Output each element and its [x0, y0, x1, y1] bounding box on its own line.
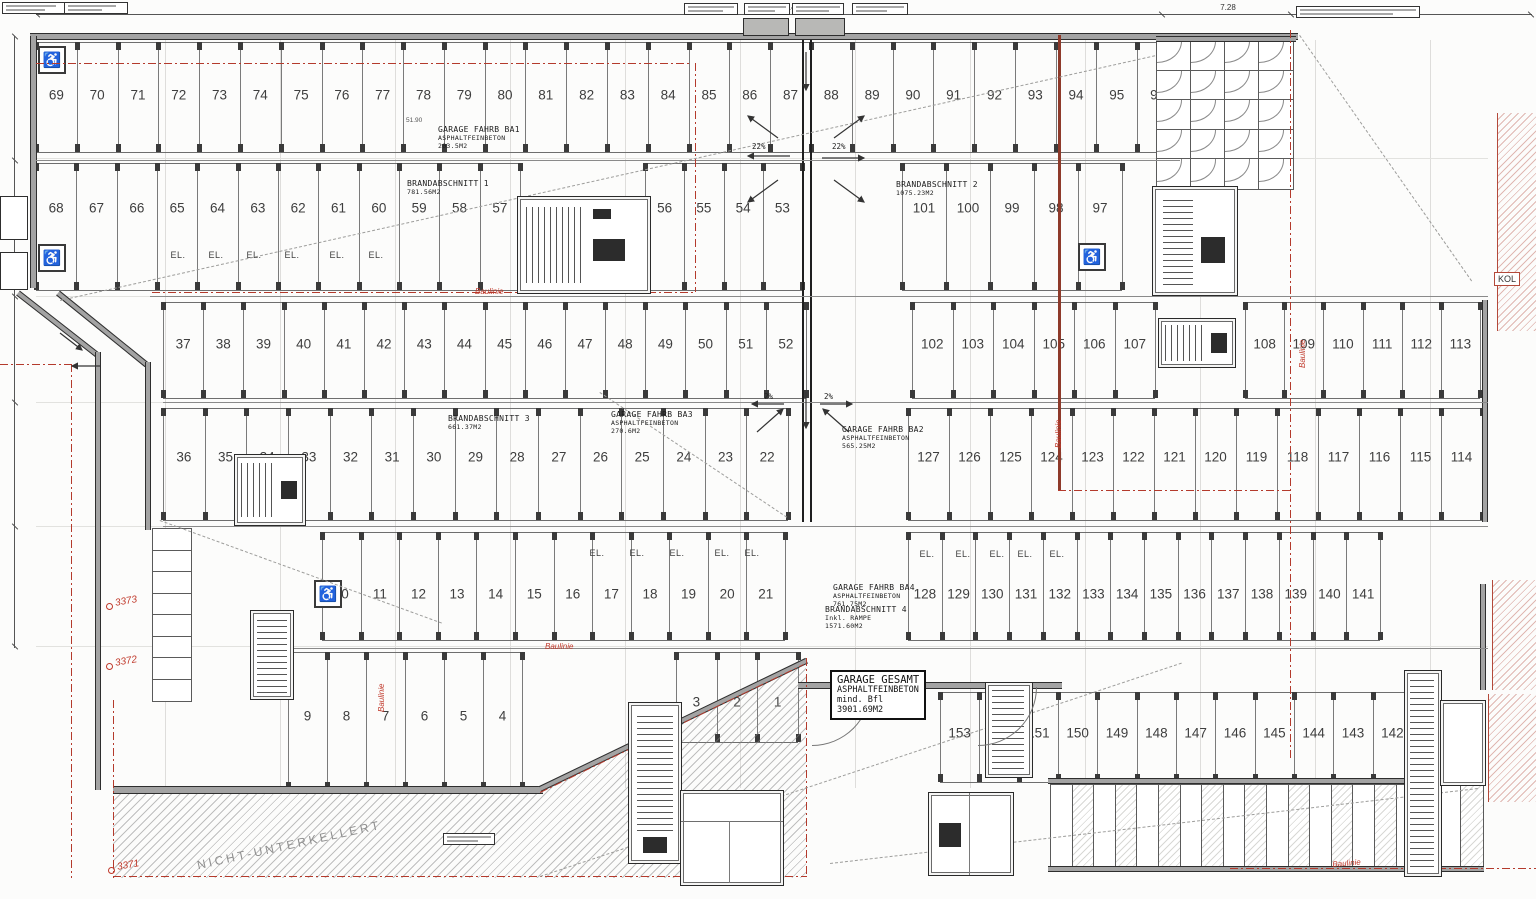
parking-divider [476, 532, 477, 640]
parking-space-number: 3 [693, 695, 701, 710]
column-block [1120, 163, 1125, 171]
storage-room-cell [1309, 784, 1333, 868]
parking-space-number: 47 [577, 337, 592, 352]
parking-space-number: 128 [914, 587, 937, 602]
storage-room-cell [1244, 784, 1268, 868]
column-block [667, 632, 672, 640]
column-block [276, 163, 281, 171]
parking-divider [199, 42, 200, 152]
parking-space-number: 28 [510, 450, 525, 465]
column-block [483, 42, 488, 50]
column-block [850, 144, 855, 152]
column-block [161, 512, 166, 520]
survey-point-marker [108, 867, 115, 874]
column-block [402, 390, 407, 398]
parking-divider [238, 163, 239, 290]
parking-space-number: 5 [460, 709, 468, 724]
parking-divider [330, 408, 331, 520]
door-swing-arc [1259, 71, 1284, 93]
parking-divider [1373, 692, 1374, 782]
storage-room-cell [1331, 784, 1355, 868]
parking-space-number: 125 [999, 450, 1022, 465]
column-block [276, 282, 281, 290]
column-block [703, 512, 708, 520]
parking-divider [708, 532, 709, 640]
parking-space-number: 79 [457, 88, 472, 103]
entrance-corridor-wall [95, 352, 101, 790]
parking-divider [1363, 302, 1364, 398]
parking-divider [1294, 692, 1295, 782]
parking-space-number: 123 [1081, 450, 1104, 465]
storage-room-cell [1266, 784, 1290, 868]
column-block [1153, 302, 1158, 310]
column-block [320, 632, 325, 640]
garage-fahrbahn-ba1-label: GARAGE FAHRB BA1ASPHALTFEINBETON203.5M2 [438, 126, 520, 150]
column-block [783, 532, 788, 540]
parking-space-number: 30 [426, 450, 441, 465]
column-block [197, 42, 202, 50]
parking-divider [953, 302, 954, 398]
parking-space-number: 19 [681, 587, 696, 602]
storage-room-cell [152, 571, 192, 595]
parking-space-number: 148 [1145, 726, 1168, 741]
column-block [674, 652, 679, 660]
left-niche [0, 252, 28, 290]
column-block [973, 532, 978, 540]
callout-box [1296, 6, 1420, 18]
door-swing-arc [1157, 100, 1182, 122]
column-block [322, 302, 327, 310]
parking-space-number: 85 [701, 88, 716, 103]
parking-space-number: 14 [488, 587, 503, 602]
column-block [481, 652, 486, 660]
column-block [1108, 532, 1113, 540]
column-block [453, 512, 458, 520]
column-block [362, 390, 367, 398]
parking-space-number: 73 [212, 88, 227, 103]
column-block [906, 632, 911, 640]
title-note-box [64, 2, 128, 14]
parking-space-number: 20 [720, 587, 735, 602]
brandabschnitt-4-label: BRANDABSCHNITT 4Inkl. RAMPE1571.60M2 [825, 606, 907, 630]
parking-divider [724, 163, 725, 290]
survey-point-label: 3373 [114, 594, 138, 609]
column-block [931, 42, 936, 50]
column-block [938, 692, 943, 700]
parking-divider [770, 42, 771, 152]
wheelchair-icon: ♿ [38, 244, 66, 272]
parking-divider [975, 532, 976, 640]
column-block [578, 512, 583, 520]
parking-space-number: 38 [216, 337, 231, 352]
column-block [1113, 302, 1118, 310]
door-swing-arc [1259, 41, 1284, 63]
column-block [520, 652, 525, 660]
ev-space-label: EL. [744, 548, 759, 558]
column-block [643, 302, 648, 310]
column-block [320, 42, 325, 50]
survey-point-marker [106, 663, 113, 670]
parking-divider [1333, 692, 1334, 782]
parking-divider [566, 42, 567, 152]
parking-space-number: 4 [499, 709, 507, 724]
dim-tick [12, 643, 18, 649]
parking-space-number: 86 [742, 88, 757, 103]
parking-space-number: 119 [1246, 450, 1268, 465]
parking-space-number: 132 [1048, 587, 1071, 602]
parking-divider [284, 302, 285, 398]
column-block [325, 652, 330, 660]
column-block [116, 144, 121, 152]
column-block [437, 163, 442, 171]
column-block [661, 512, 666, 520]
column-block [397, 282, 402, 290]
column-block [1357, 408, 1362, 416]
parking-space-number: 133 [1082, 587, 1105, 602]
column-block [755, 652, 760, 660]
parking-space-number: 83 [620, 88, 635, 103]
column-block [401, 42, 406, 50]
perimeter-wall-bottomleft [113, 786, 543, 794]
dim-tick [12, 399, 18, 405]
parking-space-number: 21 [758, 587, 773, 602]
column-block [1398, 512, 1403, 520]
column-block [1013, 144, 1018, 152]
parking-divider [933, 42, 934, 152]
parking-divider [522, 652, 523, 790]
column-block [397, 632, 402, 640]
column-block [722, 163, 727, 171]
parking-row-line [912, 398, 1155, 399]
parking-divider [1113, 408, 1114, 520]
parking-space-number: 78 [416, 88, 431, 103]
column-block [116, 42, 121, 50]
parking-space-number: 36 [176, 450, 191, 465]
parking-space-number: 59 [412, 201, 427, 216]
column-block [552, 532, 557, 540]
parking-row-line [1245, 398, 1480, 399]
parking-divider [318, 163, 319, 290]
parking-space-number: 55 [696, 201, 711, 216]
column-block [906, 512, 911, 520]
fire-section2-boundary [1058, 490, 1290, 491]
storage-room-cell [1190, 129, 1226, 161]
parking-divider [404, 302, 405, 398]
column-block [1378, 632, 1383, 640]
column-block [241, 302, 246, 310]
parking-divider [1245, 302, 1246, 398]
parking-space-number: 135 [1150, 587, 1173, 602]
storage-room-cell [152, 679, 192, 703]
parking-space-number: 130 [981, 587, 1004, 602]
column-block [1111, 512, 1116, 520]
column-block [619, 512, 624, 520]
column-block [1400, 302, 1405, 310]
parking-space-number: 149 [1106, 726, 1129, 741]
storage-room-cell [1050, 784, 1074, 868]
column-block [603, 302, 608, 310]
column-block [900, 282, 905, 290]
parking-space-number: 15 [527, 587, 542, 602]
parking-space-number: 16 [565, 587, 580, 602]
column-block [761, 163, 766, 171]
column-block [241, 390, 246, 398]
parking-divider [322, 42, 323, 152]
parking-space-number: 50 [698, 337, 713, 352]
column-block [1120, 282, 1125, 290]
column-block [1439, 302, 1444, 310]
survey-point-marker [106, 603, 113, 610]
parking-space-number: 115 [1410, 450, 1432, 465]
parking-divider [327, 652, 328, 790]
parking-divider [785, 532, 786, 640]
parking-space-number: 60 [371, 201, 386, 216]
parking-divider [413, 408, 414, 520]
door-swing-arc [1259, 159, 1284, 181]
column-block [75, 42, 80, 50]
parking-divider [197, 163, 198, 290]
ev-space-label: EL. [589, 548, 604, 558]
parking-space-number: 99 [1004, 201, 1019, 216]
column-block [744, 408, 749, 416]
door-swing-arc [1191, 130, 1216, 152]
parking-space-number: 32 [343, 450, 358, 465]
parking-divider [366, 652, 367, 790]
column-block [972, 42, 977, 50]
parking-divider [399, 163, 400, 290]
parking-divider [1031, 408, 1032, 520]
column-block [988, 163, 993, 171]
parking-divider [1284, 302, 1285, 398]
parking-space-number: 8 [343, 709, 351, 724]
column-block [1243, 390, 1248, 398]
column-block [703, 408, 708, 416]
parking-divider [163, 408, 164, 520]
elevator-bottom-right [1440, 700, 1486, 786]
column-block [667, 532, 672, 540]
column-block [1292, 692, 1297, 700]
column-block [605, 144, 610, 152]
column-block [1113, 390, 1118, 398]
parking-row-line [322, 640, 785, 641]
column-block [906, 408, 911, 416]
column-block [1277, 632, 1282, 640]
column-block [727, 42, 732, 50]
parking-divider [607, 42, 608, 152]
column-block [646, 144, 651, 152]
parking-space-number: 122 [1122, 450, 1145, 465]
parking-row-line [902, 290, 1122, 291]
parking-space-number: 58 [452, 201, 467, 216]
parking-space-number: 18 [642, 587, 657, 602]
parking-space-number: 143 [1342, 726, 1365, 741]
elevator-core-right [1158, 318, 1236, 368]
title-note-box [2, 2, 66, 14]
door-swing-arc [1225, 71, 1250, 93]
dim-tick [12, 33, 18, 39]
column-block [236, 282, 241, 290]
parking-divider [281, 42, 282, 152]
ramp-wall [802, 40, 804, 522]
column-block [1007, 532, 1012, 540]
wheelchair-icon: ♿ [38, 46, 66, 74]
column-block [563, 390, 568, 398]
column-block [706, 632, 711, 640]
ev-space-label: EL. [329, 250, 344, 260]
column-block [1439, 408, 1444, 416]
column-block [1153, 390, 1158, 398]
column-block [944, 282, 949, 290]
column-block [850, 42, 855, 50]
column-block [947, 512, 952, 520]
column-block [1439, 390, 1444, 398]
door-swing-arc [1259, 130, 1284, 152]
column-block [1076, 163, 1081, 171]
parking-space-number: 51 [738, 337, 753, 352]
property-line [0, 364, 71, 365]
parking-space-number: 150 [1066, 726, 1089, 741]
parking-divider [912, 302, 913, 398]
parking-space-number: 41 [336, 337, 351, 352]
parking-space-number: 136 [1183, 587, 1206, 602]
survey-point-label: 3372 [114, 654, 138, 669]
column-block [1371, 692, 1376, 700]
column-block [478, 163, 483, 171]
parking-space-number: 43 [417, 337, 432, 352]
column-block [369, 408, 374, 416]
storage-room-cell [1223, 784, 1247, 868]
parking-space-number: 141 [1352, 587, 1375, 602]
parking-divider [1441, 302, 1442, 398]
column-block [403, 652, 408, 660]
ev-space-label: EL. [368, 250, 383, 260]
column-block [944, 163, 949, 171]
door-swing-arc [1157, 41, 1182, 63]
garage-gesamt-box: GARAGE GESAMTASPHALTFEINBETONmind. Bfl39… [830, 670, 926, 720]
parking-space-number: 102 [921, 337, 944, 352]
parking-space-number: 67 [89, 201, 104, 216]
parking-space-number: 82 [579, 88, 594, 103]
column-block [722, 282, 727, 290]
parking-divider [684, 163, 685, 290]
column-block [513, 532, 518, 540]
perimeter-wall-left [30, 36, 37, 288]
aisle-line [288, 648, 1488, 649]
column-block [906, 532, 911, 540]
storage-room-cell [152, 593, 192, 617]
column-block [282, 302, 287, 310]
dim-tick [12, 523, 18, 529]
parking-space-number: 45 [497, 337, 512, 352]
column-block [523, 302, 528, 310]
column-block [1344, 532, 1349, 540]
parking-divider [1074, 302, 1075, 398]
parking-divider [163, 302, 164, 398]
parking-space-number: 126 [958, 450, 981, 465]
parking-space-number: 131 [1015, 587, 1038, 602]
column-block [360, 42, 365, 50]
parking-space-number: 74 [253, 88, 268, 103]
parking-divider [1176, 692, 1177, 782]
dim-tick [12, 157, 18, 163]
existing-building-hatch [1497, 113, 1536, 331]
column-block [523, 42, 528, 50]
parking-divider [1279, 532, 1280, 640]
parking-divider [1245, 532, 1246, 640]
storage-room-cell [1156, 70, 1192, 102]
column-block [1311, 632, 1316, 640]
parking-divider [766, 302, 767, 398]
parking-space-number: 53 [775, 201, 790, 216]
parking-divider [726, 302, 727, 398]
aisle-line [150, 296, 1488, 297]
perimeter-wall-top [30, 33, 1298, 40]
parking-space-number: 144 [1302, 726, 1325, 741]
column-block [322, 390, 327, 398]
parking-divider [1346, 532, 1347, 640]
parking-divider [525, 42, 526, 152]
parking-space-number: 116 [1369, 450, 1391, 465]
parking-divider [1277, 408, 1278, 520]
parking-space-number: 80 [498, 88, 513, 103]
door-swing-arc [1225, 159, 1250, 181]
door-swing-arc [1259, 100, 1284, 122]
column-block [1316, 408, 1321, 416]
column-block [442, 302, 447, 310]
column-block [1321, 302, 1326, 310]
parking-space-number: 61 [331, 201, 346, 216]
column-block [563, 302, 568, 310]
column-block [1070, 512, 1075, 520]
column-block [359, 632, 364, 640]
parking-space-number: 147 [1184, 726, 1207, 741]
vent-shaft [743, 18, 789, 36]
parking-divider [648, 42, 649, 152]
column-block [1072, 302, 1077, 310]
parking-divider [990, 408, 991, 520]
parking-space-number: 9 [304, 709, 312, 724]
stair-core-bottom-center [628, 702, 682, 864]
column-block [1275, 408, 1280, 416]
column-block [687, 144, 692, 152]
column-block [1344, 632, 1349, 640]
door-swing-arc [1157, 159, 1182, 181]
parking-row-line [645, 290, 802, 291]
column-block [991, 390, 996, 398]
column-block [156, 144, 161, 152]
parking-divider [278, 163, 279, 290]
parking-divider [483, 652, 484, 790]
parking-row-line [163, 398, 806, 399]
parking-space-number: 37 [176, 337, 191, 352]
storage-room-cell [1156, 99, 1192, 131]
parking-space-number: 23 [718, 450, 733, 465]
column-block [1152, 408, 1157, 416]
column-block [804, 302, 809, 310]
ev-space-label: EL. [629, 548, 644, 558]
column-block [1331, 692, 1336, 700]
column-block [1029, 408, 1034, 416]
parking-space-number: 87 [783, 88, 798, 103]
stair-left-lower [250, 610, 294, 700]
storage-room-cell [1258, 70, 1294, 102]
parking-divider [485, 302, 486, 398]
parking-divider [324, 302, 325, 398]
storage-room-cell [1224, 99, 1260, 131]
garage-floor-plan: 6970717273747576777879808182838485868788… [0, 0, 1536, 899]
storage-room-cell [1374, 784, 1398, 868]
parking-space-number: 95 [1109, 88, 1124, 103]
